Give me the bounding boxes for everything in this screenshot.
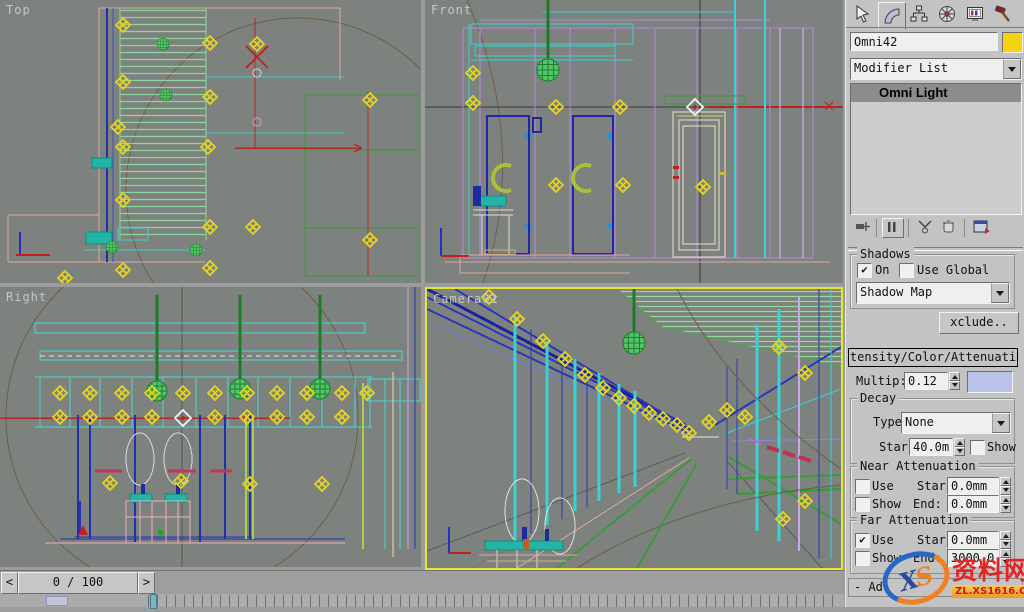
near-attenuation-title: Near Attenuation [857, 459, 979, 473]
tab-motion[interactable] [934, 2, 960, 26]
hierarchy-icon [909, 4, 929, 24]
decay-type-arrow[interactable] [992, 413, 1010, 433]
viewport-camera[interactable]: Camera01 [425, 287, 843, 570]
near-end-label: End: [913, 497, 942, 511]
tab-hierarchy[interactable] [906, 2, 932, 26]
light-name-input[interactable] [850, 32, 998, 51]
tab-modify[interactable] [878, 2, 906, 30]
decay-show-label: Show [987, 440, 1016, 454]
toolbar-separator [908, 219, 909, 237]
next-frame-button[interactable]: > [138, 572, 155, 594]
watermark: X S 资料网 ZL.XS1616.COM [882, 549, 1024, 607]
near-end-field[interactable]: 0.0mm [947, 495, 999, 513]
track-bar-key[interactable] [46, 596, 68, 606]
viewport-top[interactable]: Top [0, 0, 421, 283]
time-slider-bar[interactable]: < 0 / 100 > [0, 570, 844, 595]
camera-viewport-wireframe [427, 289, 841, 568]
near-start-field[interactable]: 0.0mm [947, 477, 999, 495]
modifier-list-arrow[interactable] [1003, 59, 1021, 79]
display-monitor-icon [965, 4, 985, 24]
time-slider-thumb[interactable]: 0 / 100 [18, 572, 138, 594]
decay-type-dropdown[interactable]: None [901, 412, 1011, 434]
multiplier-label: Multip: [856, 374, 907, 388]
decay-start-label: Star [879, 440, 908, 454]
modifier-stack-toolbar [846, 217, 1024, 239]
viewport-top-label[interactable]: Top [6, 3, 31, 17]
track-bar-ticks [148, 595, 838, 607]
create-arrow-icon [853, 4, 873, 24]
near-use-label: Use [872, 479, 894, 493]
shadow-type-dropdown[interactable]: Shadow Map [856, 282, 1010, 304]
near-start-label: Star [917, 479, 946, 493]
decay-type-value: None [902, 413, 992, 433]
utilities-hammer-icon [993, 4, 1013, 24]
decay-show-checkbox[interactable] [970, 440, 985, 455]
previous-frame-button[interactable]: < [1, 572, 18, 594]
use-global-checkbox[interactable] [899, 263, 914, 278]
multiplier-field[interactable]: 0.12 [904, 372, 948, 390]
far-start-field[interactable]: 0.0mm [947, 531, 999, 549]
configure-modifier-sets-icon[interactable] [972, 219, 992, 239]
shadow-type-arrow[interactable] [991, 283, 1009, 303]
tab-display[interactable] [962, 2, 988, 26]
light-color-swatch[interactable] [1002, 32, 1023, 53]
remove-modifier-icon[interactable] [940, 219, 958, 239]
viewport-right[interactable]: Right [0, 287, 421, 567]
top-viewport-wireframe [0, 0, 421, 283]
far-show-checkbox[interactable] [855, 551, 870, 566]
watermark-text: 资料网 ZL.XS1616.COM [952, 558, 1024, 598]
watermark-url: ZL.XS1616.COM [952, 585, 1024, 598]
far-use-label: Use [872, 533, 894, 547]
shadows-on-label: On [875, 263, 889, 277]
viewport-right-label[interactable]: Right [6, 290, 47, 304]
exclude-button[interactable]: xclude.. [939, 312, 1019, 334]
right-viewport-wireframe [0, 287, 421, 567]
far-attenuation-title: Far Attenuation [857, 513, 971, 527]
far-start-spinner[interactable] [1000, 531, 1011, 549]
modifier-list-dropdown[interactable]: Modifier List [850, 58, 1022, 80]
motion-wheel-icon [937, 4, 957, 24]
far-use-checkbox[interactable]: ✔ [855, 533, 870, 548]
multiplier-spinner[interactable] [949, 372, 960, 390]
show-end-result-button[interactable] [882, 218, 904, 238]
shadows-group-title: Shadows [857, 247, 914, 261]
near-end-spinner[interactable] [1000, 495, 1011, 513]
viewport-front-label[interactable]: Front [431, 3, 472, 17]
intensity-rollout-header[interactable]: tensity/Color/Attenuati [848, 348, 1018, 367]
light-color-picker-swatch[interactable] [967, 371, 1013, 393]
toolbar-separator [964, 219, 965, 237]
near-use-checkbox[interactable] [855, 479, 870, 494]
watermark-logo-oval: X S [876, 544, 956, 612]
decay-type-label: Type [873, 415, 902, 429]
chevron-down-icon [997, 421, 1005, 430]
decay-start-spinner[interactable] [954, 438, 965, 456]
watermark-site-name: 资料网 [952, 558, 1024, 584]
tab-utilities[interactable] [990, 2, 1016, 26]
front-viewport-wireframe [425, 0, 843, 283]
tab-create[interactable] [850, 2, 876, 26]
modifier-stack[interactable]: Omni Light [850, 83, 1022, 215]
chevron-down-icon [1008, 67, 1016, 76]
chevron-down-icon [996, 291, 1004, 300]
shadows-on-checkbox[interactable]: ✔ [857, 263, 872, 278]
track-bar[interactable] [0, 594, 844, 607]
decay-start-field[interactable]: 40.0m [909, 438, 953, 456]
modify-icon [882, 6, 902, 26]
shadow-type-value: Shadow Map [857, 283, 991, 303]
decay-group-title: Decay [857, 391, 899, 405]
modifier-stack-selected-row[interactable]: Omni Light [851, 84, 1021, 102]
use-global-label: Use Global [917, 263, 989, 277]
near-show-checkbox[interactable] [855, 497, 870, 512]
near-start-spinner[interactable] [1000, 477, 1011, 495]
modifier-list-label: Modifier List [851, 59, 1003, 79]
viewport-front[interactable]: Front [425, 0, 843, 283]
toolbar-separator [876, 219, 877, 237]
near-show-label: Show [872, 497, 901, 511]
tab-divider [846, 27, 1024, 28]
command-panel: Modifier List Omni Light Shadows ✔ On Us… [845, 0, 1024, 607]
far-start-label: Star [917, 533, 946, 547]
pin-stack-icon[interactable] [854, 219, 872, 239]
make-unique-icon[interactable] [916, 219, 934, 239]
viewport-camera-label[interactable]: Camera01 [433, 292, 499, 306]
